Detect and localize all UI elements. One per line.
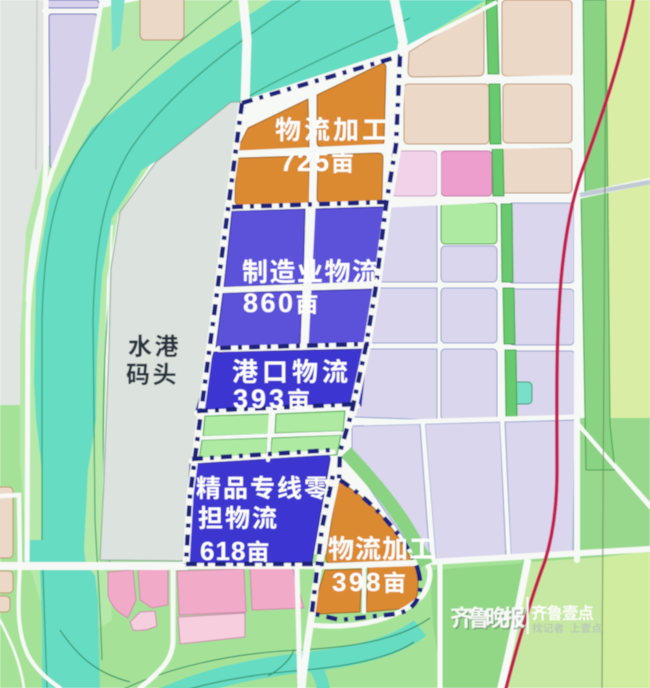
svg-text:6: 6 bbox=[261, 288, 276, 318]
svg-text:9: 9 bbox=[251, 384, 266, 414]
svg-text:8: 8 bbox=[366, 567, 380, 597]
svg-text:8: 8 bbox=[231, 536, 245, 566]
svg-text:5: 5 bbox=[314, 147, 329, 177]
svg-text:8: 8 bbox=[243, 288, 258, 318]
svg-text:3: 3 bbox=[269, 384, 284, 414]
svg-text:2: 2 bbox=[297, 147, 312, 177]
svg-text:7: 7 bbox=[280, 147, 295, 177]
svg-text:3: 3 bbox=[332, 567, 346, 597]
svg-text:1: 1 bbox=[216, 536, 230, 566]
svg-text:9: 9 bbox=[349, 567, 363, 597]
svg-text:0: 0 bbox=[278, 288, 293, 318]
svg-text:3: 3 bbox=[233, 384, 248, 414]
svg-text:6: 6 bbox=[200, 536, 214, 566]
